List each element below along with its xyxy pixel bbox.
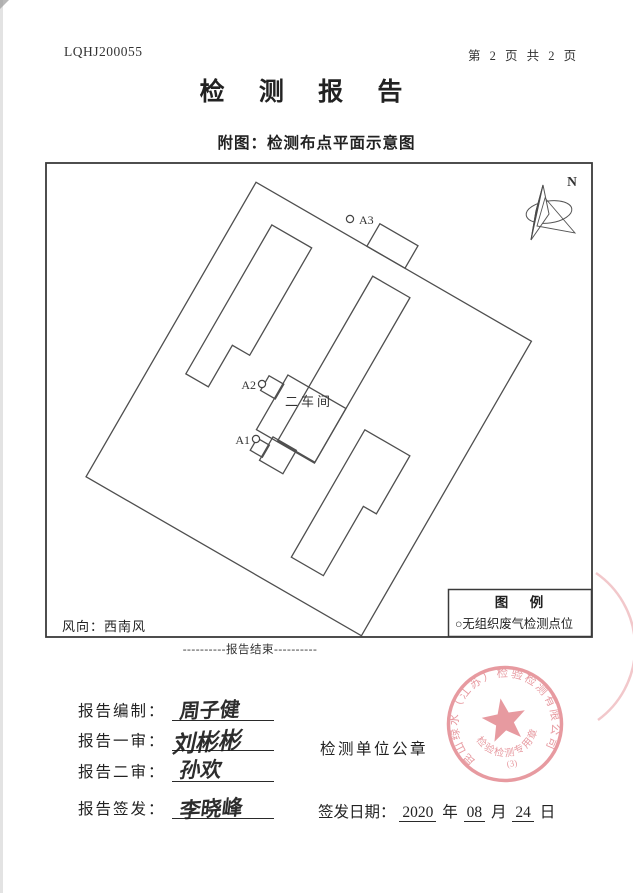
- signature-issued: 李晓峰: [178, 791, 245, 825]
- signature-line: 刘彬彬: [172, 726, 274, 751]
- point-a1-label: A1: [235, 433, 250, 447]
- signoff-row-review1: 报告一审： 刘彬彬: [78, 726, 274, 751]
- legend-item: ○无组织废气检测点位: [455, 616, 573, 631]
- signature-prepared: 周子健: [178, 693, 242, 724]
- point-a3-marker: [346, 215, 353, 222]
- signoff-row-issued: 报告签发： 李晓峰: [78, 794, 274, 819]
- site-plan-diagram: A3 A2 A1 二车间 N 图 例 ○无组织废气检测点位 风向：西南风: [45, 162, 593, 638]
- north-label: N: [567, 174, 577, 189]
- signature-line: 孙欢: [172, 757, 274, 782]
- issue-month-unit: 月: [489, 804, 509, 821]
- workshop-2-building: [256, 375, 346, 463]
- issue-month: 08: [464, 804, 486, 822]
- issue-date-label: 签发日期：: [318, 804, 396, 821]
- signature-line: 李晓峰: [172, 794, 274, 819]
- seal-number: (3): [506, 758, 518, 770]
- company-seal: 昆山绿水（江苏）检验检测有限公司 检验检测专用章 (3): [438, 659, 572, 795]
- signature-review2: 孙欢: [177, 754, 225, 785]
- signoff-label: 报告一审：: [78, 729, 166, 751]
- building-middle: [278, 276, 410, 462]
- point-a3-label: A3: [359, 213, 374, 227]
- seal-caption: 检测单位公章: [320, 737, 428, 759]
- legend-title: 图 例: [495, 594, 548, 610]
- issue-day: 24: [512, 804, 534, 822]
- signoff-row-review2: 报告二审： 孙欢: [78, 757, 274, 782]
- seal-star-icon: [479, 695, 529, 744]
- issue-year-unit: 年: [440, 804, 460, 821]
- report-number: LQHJ200055: [64, 44, 143, 60]
- point-a2-marker: [258, 380, 265, 387]
- issue-day-unit: 日: [538, 804, 558, 821]
- report-page: LQHJ200055 第 2 页 共 2 页 检 测 报 告 附图：检测布点平面…: [0, 0, 633, 893]
- legend-box: 图 例 ○无组织废气检测点位: [449, 590, 592, 637]
- issue-year: 2020: [399, 804, 436, 822]
- workshop-2-label: 二车间: [285, 394, 333, 409]
- page-indicator: 第 2 页 共 2 页: [468, 45, 579, 64]
- scan-corner-artifact: [0, 0, 9, 9]
- north-arrow-icon: [525, 185, 575, 240]
- signoff-row-prepared: 报告编制： 周子健: [78, 696, 274, 721]
- building-east: [291, 430, 410, 583]
- point-a1-marker: [252, 435, 259, 442]
- edge-stamp-arc: [586, 556, 633, 741]
- figure-caption: 附图：检测布点平面示意图: [0, 131, 633, 153]
- gatehouse-a3: [367, 224, 418, 269]
- signoff-label: 报告签发：: [78, 797, 166, 819]
- report-end-marker: ----------报告结束----------: [130, 641, 370, 657]
- point-a2-label: A2: [241, 378, 256, 392]
- issue-date: 签发日期： 2020 年 08 月 24 日: [318, 800, 557, 822]
- edge-stamp-arc-path: [596, 573, 633, 720]
- report-title: 检 测 报 告: [0, 72, 616, 108]
- compass-needle-outline: [531, 185, 549, 240]
- wind-direction-note: 风向：西南风: [62, 619, 146, 634]
- building-west: [186, 225, 312, 397]
- signature-line: 周子健: [172, 696, 274, 721]
- signoff-label: 报告编制：: [78, 699, 166, 721]
- signoff-label: 报告二审：: [78, 760, 166, 782]
